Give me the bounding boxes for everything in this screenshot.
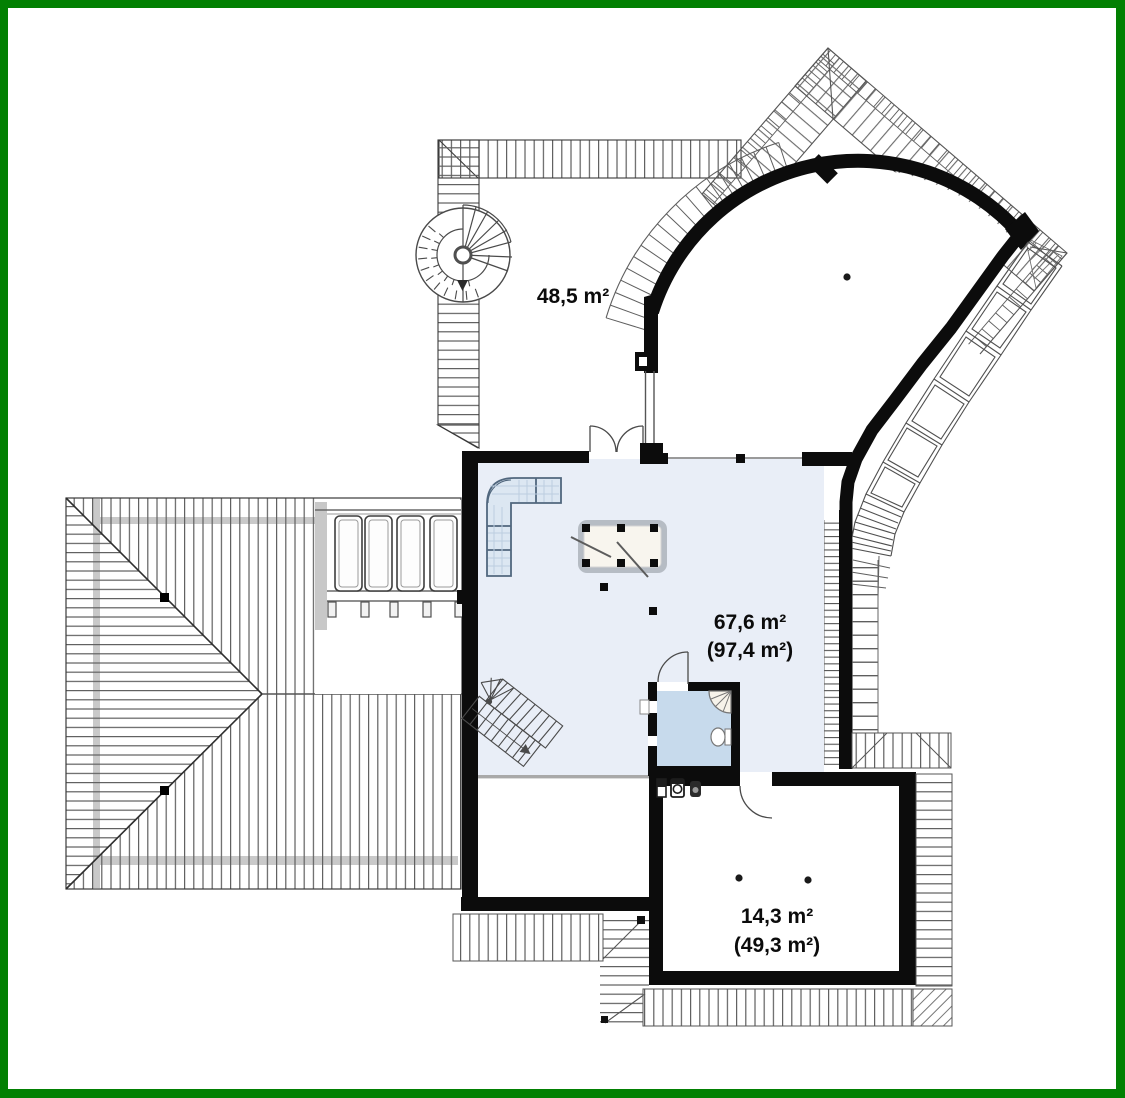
svg-text:67,6 m²: 67,6 m²: [714, 611, 786, 634]
svg-text:48,5 m²: 48,5 m²: [537, 285, 609, 308]
svg-text:(97,4 m²): (97,4 m²): [707, 639, 793, 662]
svg-text:(49,3 m²): (49,3 m²): [734, 934, 820, 957]
svg-text:14,3 m²: 14,3 m²: [741, 905, 813, 928]
